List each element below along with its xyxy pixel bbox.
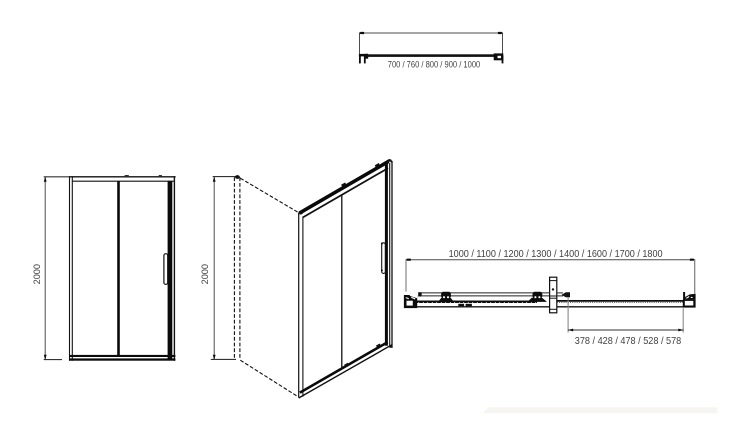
svg-text:378 / 428 / 478 / 528 / 578: 378 / 428 / 478 / 528 / 578: [575, 336, 682, 347]
svg-text:2000: 2000: [200, 264, 211, 284]
svg-text:700 / 760 / 800 / 900 / 1000: 700 / 760 / 800 / 900 / 1000: [388, 60, 481, 71]
svg-text:2000: 2000: [32, 264, 43, 284]
svg-text:1000 / 1100 / 1200 / 1300 / 14: 1000 / 1100 / 1200 / 1300 / 1400 / 1600 …: [449, 249, 663, 260]
